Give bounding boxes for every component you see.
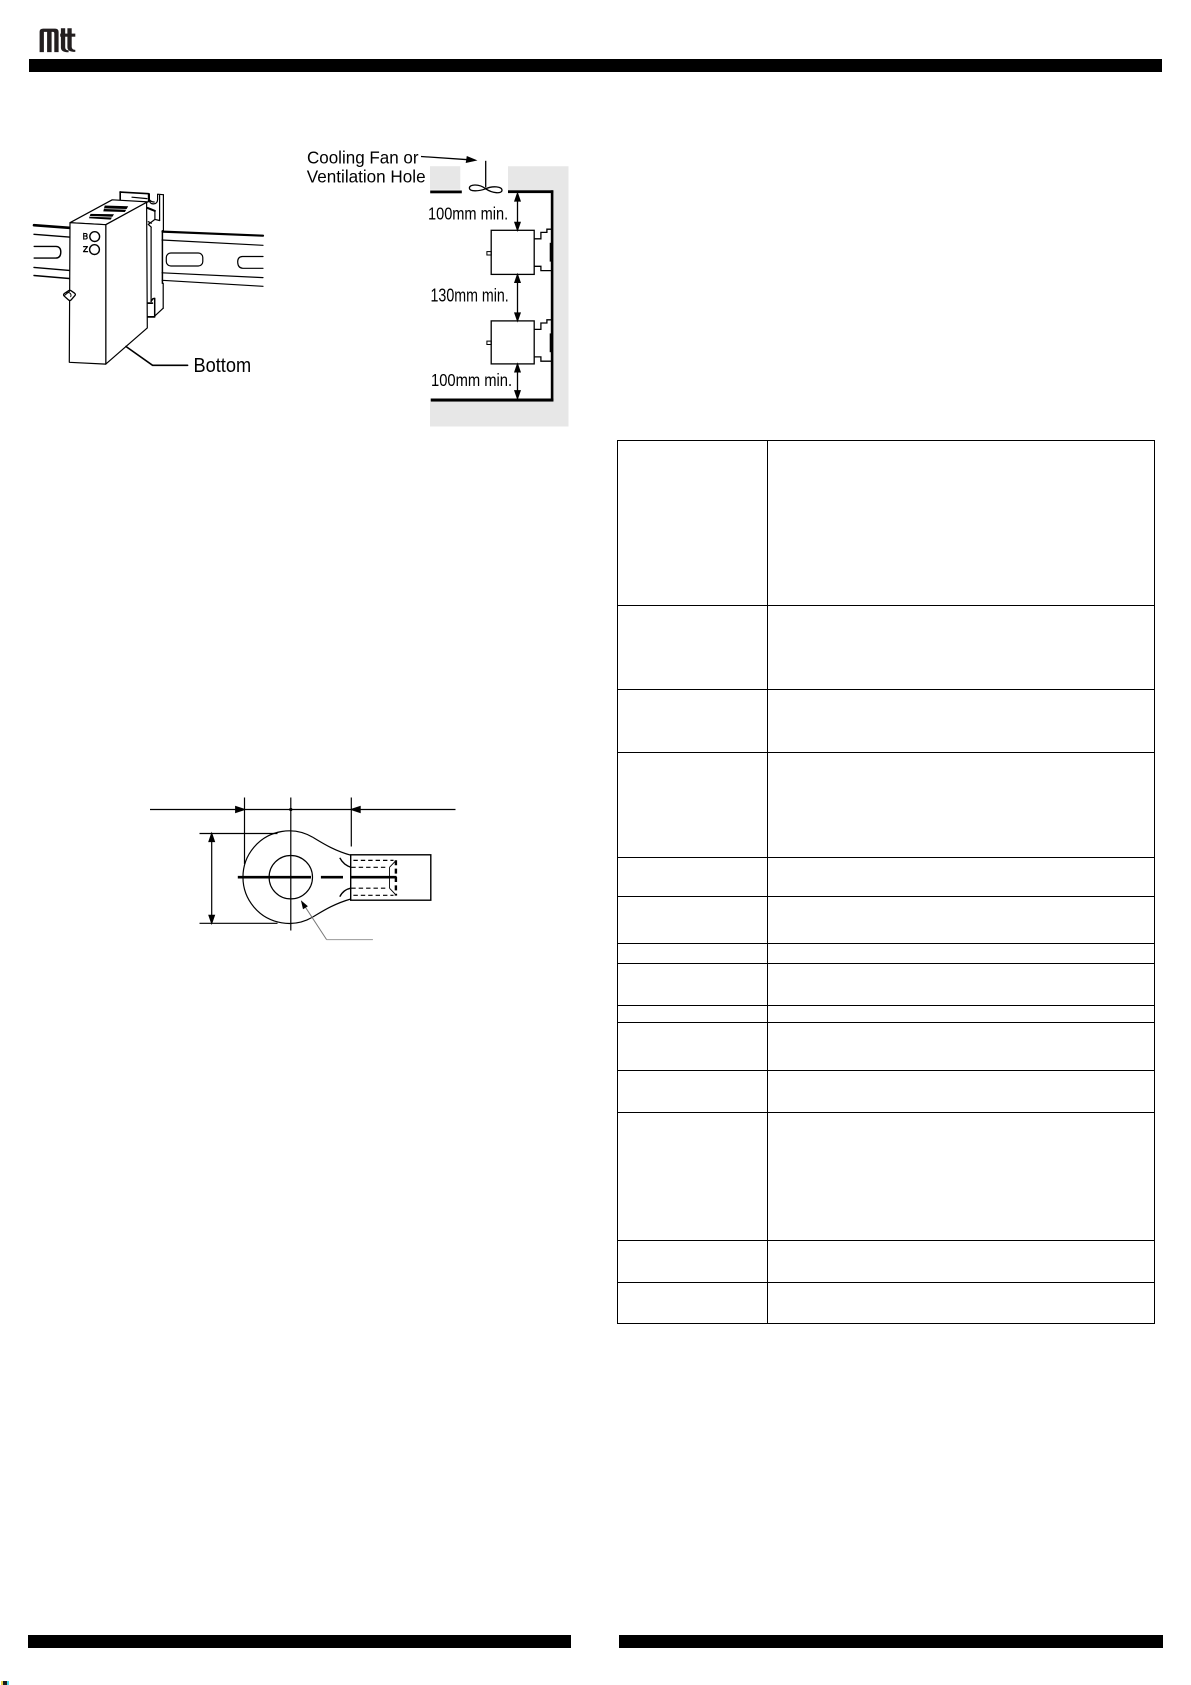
svg-text:100mm min.: 100mm min.	[431, 371, 512, 391]
svg-text:Cooling Fan or: Cooling Fan or	[307, 147, 419, 168]
svg-text:130mm min.: 130mm min.	[431, 286, 509, 306]
svg-text:Bottom: Bottom	[194, 355, 252, 377]
svg-text:Ventilation Hole: Ventilation Hole	[307, 166, 426, 187]
svg-text:100mm min.: 100mm min.	[428, 204, 508, 224]
